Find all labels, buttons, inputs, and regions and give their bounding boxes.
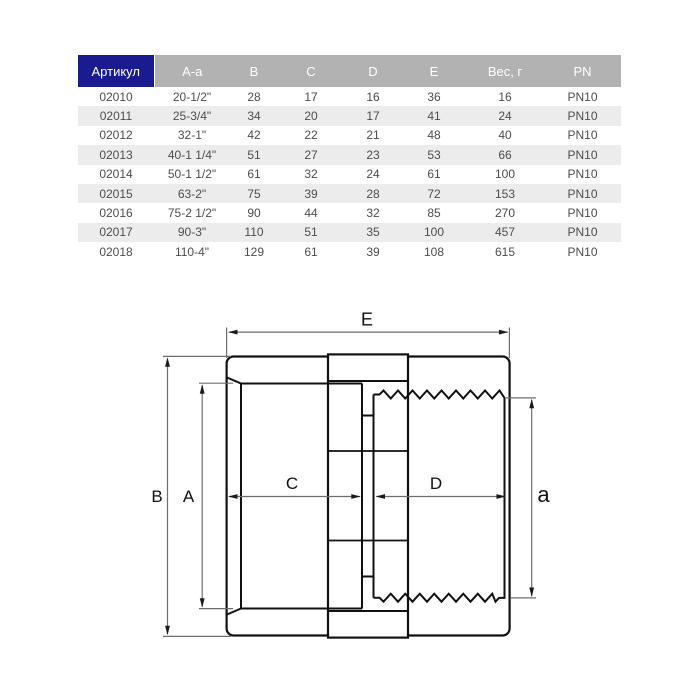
svg-text:a: a — [537, 482, 550, 507]
svg-text:E: E — [361, 310, 373, 330]
svg-text:D: D — [430, 474, 442, 493]
svg-text:A: A — [183, 487, 195, 506]
svg-text:C: C — [286, 474, 298, 493]
svg-text:B: B — [151, 487, 162, 506]
